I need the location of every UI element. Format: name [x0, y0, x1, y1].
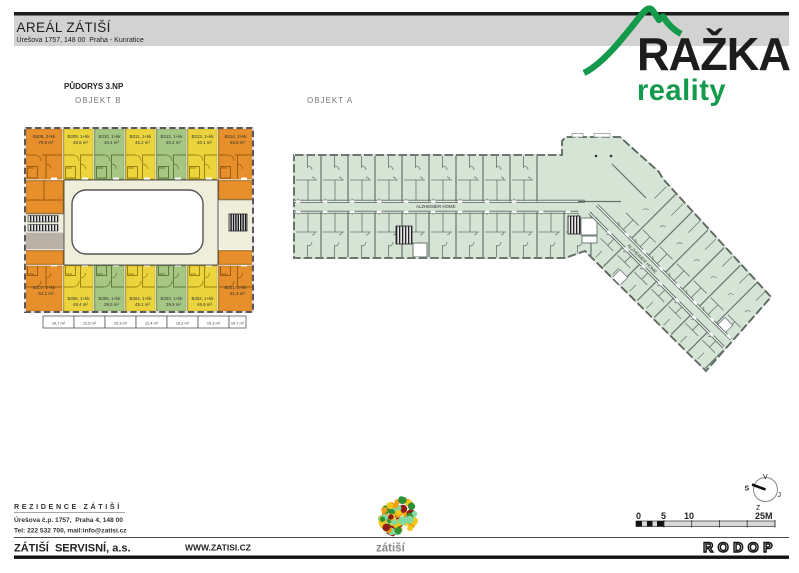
svg-text:B305, 1+kk: B305, 1+kk: [98, 296, 121, 301]
svg-text:OBJEKT B: OBJEKT B: [75, 96, 122, 105]
svg-text:0: 0: [636, 511, 641, 521]
svg-text:61.3 m²: 61.3 m²: [230, 291, 245, 296]
svg-text:B311, 1+kk: B311, 1+kk: [130, 134, 153, 139]
svg-text:B313, 1+kk: B313, 1+kk: [191, 134, 214, 139]
svg-text:61.1 m²: 61.1 m²: [39, 291, 54, 296]
svg-text:Z: Z: [756, 505, 761, 512]
svg-text:40.4 m²: 40.4 m²: [104, 140, 119, 145]
svg-text:B306, 1+kk: B306, 1+kk: [67, 296, 90, 301]
svg-text:PŮDORYS 3.NP: PŮDORYS 3.NP: [64, 81, 124, 91]
svg-text:B303, 1+kk: B303, 1+kk: [160, 296, 183, 301]
svg-text:V: V: [763, 474, 768, 481]
svg-text:Úrešova 1757, 148 00 Praha -: Úrešova 1757, 148 00 Praha - Kunratice: [17, 35, 144, 44]
svg-text:REZIDENCE ZÁTIŠÍ: REZIDENCE ZÁTIŠÍ: [14, 502, 122, 511]
svg-text:B301, 2+kk: B301, 2+kk: [224, 285, 247, 290]
svg-text:5: 5: [661, 511, 666, 521]
svg-text:zátiší: zátiší: [376, 543, 406, 555]
svg-text:49.6 m²: 49.6 m²: [73, 140, 88, 145]
svg-text:B308, 3+kk: B308, 3+kk: [33, 134, 56, 139]
svg-text:Úrešova č.p. 1757, Praha 4, 1: Úrešova č.p. 1757, Praha 4, 148 00: [14, 515, 123, 524]
svg-text:12,5 m²: 12,5 m²: [83, 321, 97, 326]
svg-text:S: S: [745, 486, 750, 493]
svg-text:WWW.ZATISI.CZ: WWW.ZATISI.CZ: [185, 543, 251, 553]
svg-text:J: J: [778, 492, 782, 499]
svg-text:reality: reality: [637, 74, 726, 107]
svg-text:OBJEKT A: OBJEKT A: [307, 96, 353, 105]
svg-text:48.4 m²: 48.4 m²: [73, 302, 88, 307]
svg-text:10,3 m²: 10,3 m²: [114, 321, 128, 326]
svg-text:B307, 2+kk: B307, 2+kk: [33, 285, 56, 290]
svg-text:46.9 m²: 46.9 m²: [197, 302, 212, 307]
svg-text:B310, 1+kk: B310, 1+kk: [98, 134, 121, 139]
svg-text:39.5 m²: 39.5 m²: [104, 302, 119, 307]
svg-text:RAŽKA: RAŽKA: [637, 28, 790, 80]
svg-text:66.8 m²: 66.8 m²: [230, 140, 245, 145]
svg-text:40.4 m²: 40.4 m²: [166, 140, 181, 145]
svg-text:40.1 m²: 40.1 m²: [197, 140, 212, 145]
svg-text:46.2 m²: 46.2 m²: [135, 140, 150, 145]
svg-text:12,4 m²: 12,4 m²: [145, 321, 159, 326]
svg-text:AREÁL ZÁTIŠÍ: AREÁL ZÁTIŠÍ: [17, 20, 111, 35]
svg-text:79.9 m²: 79.9 m²: [39, 140, 54, 145]
svg-text:39.5 m²: 39.5 m²: [166, 302, 181, 307]
svg-text:45.1 m²: 45.1 m²: [135, 302, 150, 307]
svg-text:B302, 1+kk: B302, 1+kk: [191, 296, 214, 301]
svg-text:10: 10: [684, 511, 694, 521]
svg-text:10,2 m²: 10,2 m²: [176, 321, 190, 326]
svg-text:B312, 1+kk: B312, 1+kk: [160, 134, 183, 139]
svg-text:10,7 m²: 10,7 m²: [231, 321, 245, 326]
svg-text:25M: 25M: [755, 511, 773, 521]
svg-text:B304, 1+kk: B304, 1+kk: [129, 296, 152, 301]
svg-text:ZÁTIŠÍ SERVISNÍ, a.s.: ZÁTIŠÍ SERVISNÍ, a.s.: [14, 542, 131, 555]
svg-text:B309, 1+kk: B309, 1+kk: [67, 134, 90, 139]
svg-text:ALZHEIMER HOME: ALZHEIMER HOME: [416, 204, 456, 209]
svg-text:B314, 2+kk: B314, 2+kk: [224, 134, 247, 139]
svg-text:RODOP: RODOP: [703, 539, 777, 555]
svg-text:10,7 m²: 10,7 m²: [52, 321, 66, 326]
svg-text:Tel: 222 532 700, mail:info@za: Tel: 222 532 700, mail:info@zatisi.cz: [14, 528, 127, 535]
svg-text:10,3 m²: 10,3 m²: [207, 321, 221, 326]
